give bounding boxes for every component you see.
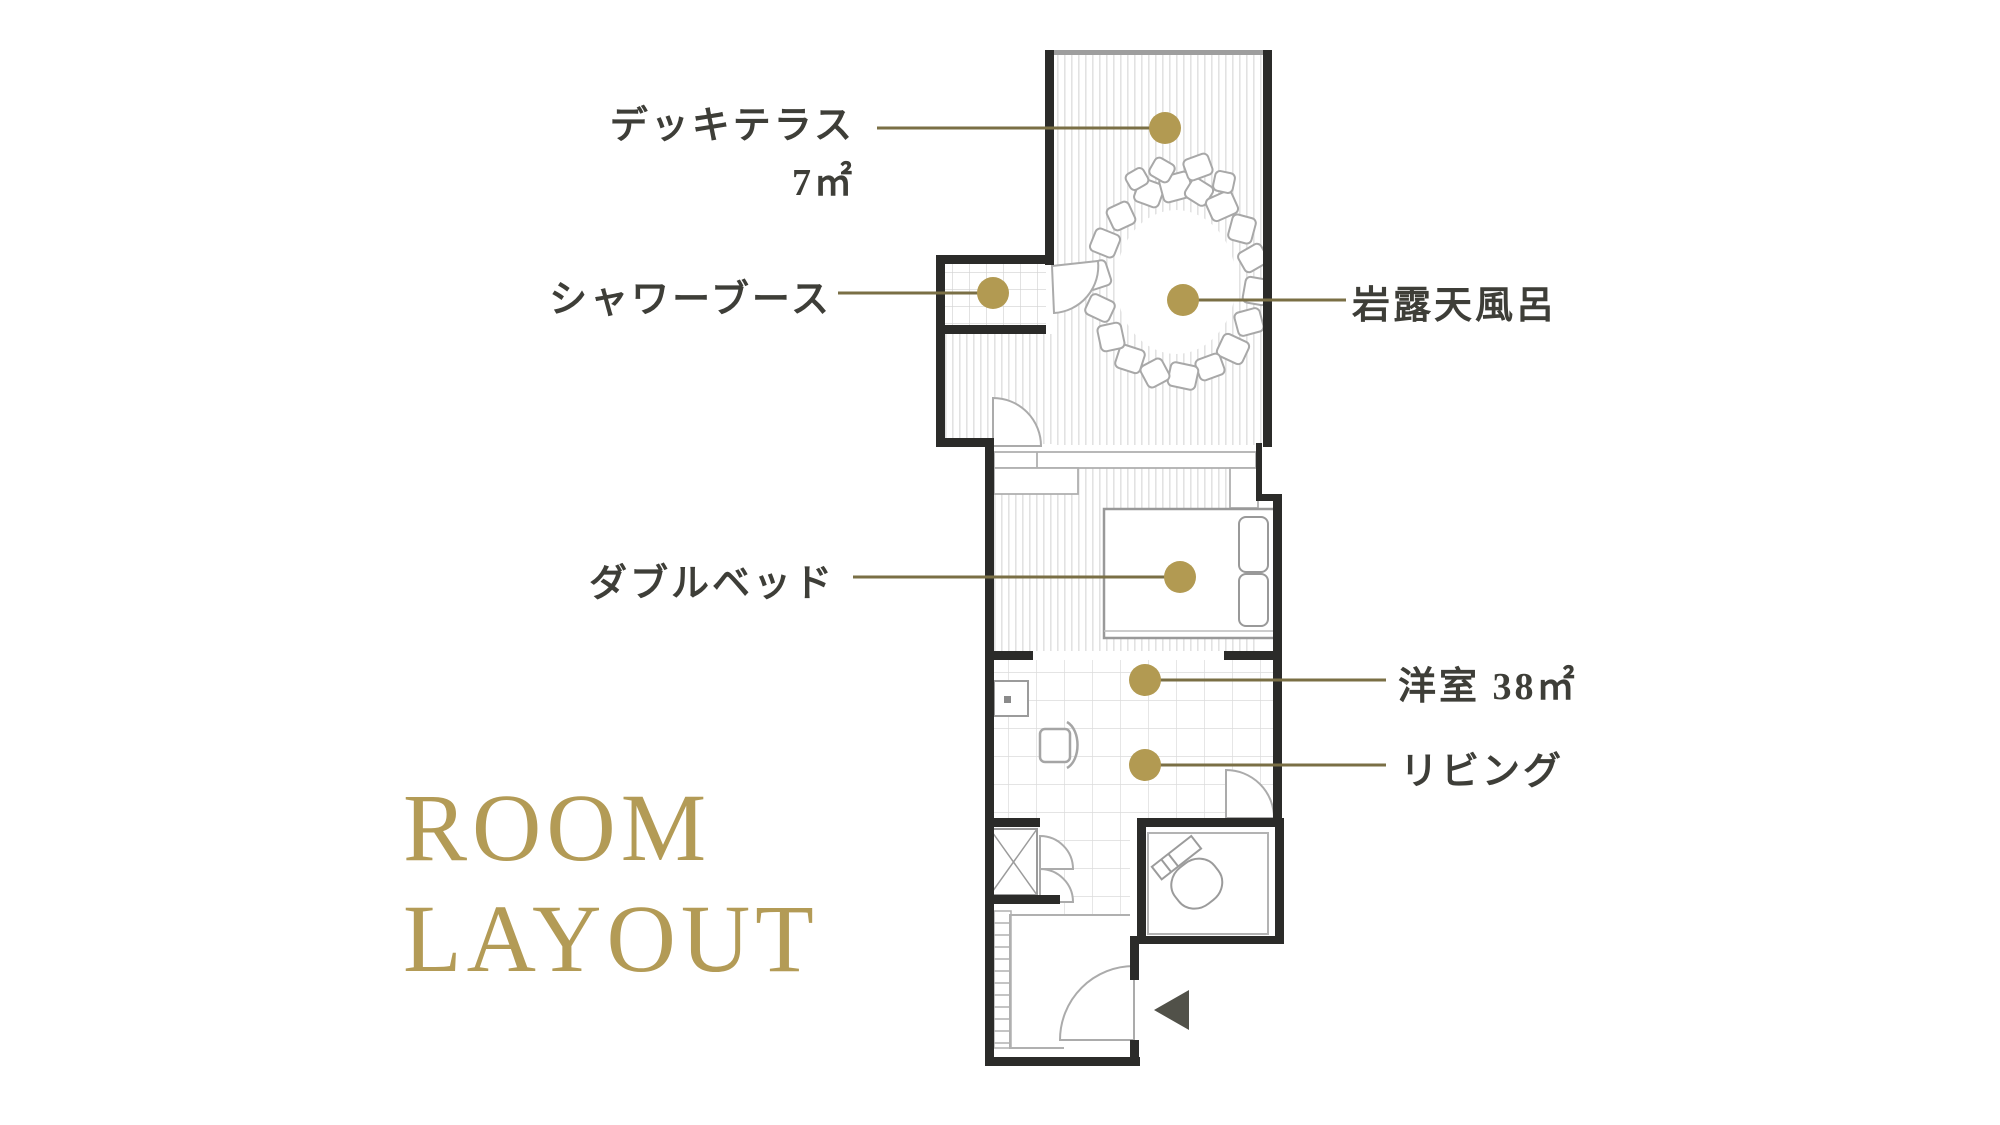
- dot-western-room: [1129, 664, 1161, 696]
- stairs: [994, 911, 1011, 1048]
- page-title: ROOM LAYOUT: [403, 772, 819, 995]
- label-rock-bath-text: 岩露天風呂: [1352, 278, 1557, 335]
- entry-door-arc: [1060, 966, 1134, 1040]
- page-title-line-1: ROOM: [403, 772, 819, 883]
- page-title-line-2: LAYOUT: [403, 883, 819, 994]
- dot-double-bed: [1164, 561, 1196, 593]
- label-western-room: 洋室 38㎡: [1398, 659, 1578, 716]
- storage-box: [990, 829, 1037, 895]
- stair-treads: [994, 923, 1011, 1043]
- dot-deck-terrace: [1149, 112, 1181, 144]
- kitchenette-counter: [994, 681, 1028, 716]
- label-western-room-text: 洋室 38㎡: [1398, 659, 1578, 716]
- pillow: [1239, 574, 1268, 626]
- room-layout-page: デッキテラス 7㎡ シャワーブース 岩露天風呂 ダブルベッド 洋室 38㎡ リビ…: [0, 0, 2000, 1125]
- label-living-text: リビング: [1400, 744, 1564, 801]
- label-deck-terrace: デッキテラス 7㎡: [610, 98, 855, 212]
- label-double-bed: ダブルベッド: [589, 556, 835, 613]
- floor-plan: [0, 0, 2000, 1125]
- label-deck-terrace-area: 7㎡: [610, 155, 855, 212]
- entry-arrow-icon: [1154, 990, 1189, 1030]
- label-deck-terrace-text: デッキテラス: [610, 98, 855, 155]
- dot-living: [1129, 749, 1161, 781]
- dot-shower-booth: [977, 277, 1009, 309]
- label-shower-booth-text: シャワーブース: [549, 272, 832, 329]
- label-shower-booth: シャワーブース: [549, 272, 832, 329]
- dot-rock-bath: [1167, 284, 1199, 316]
- label-double-bed-text: ダブルベッド: [589, 556, 835, 613]
- label-living: リビング: [1400, 744, 1564, 801]
- deck-rail: [1045, 50, 1272, 55]
- toilet-room: [1148, 833, 1268, 934]
- pillow: [1239, 517, 1268, 572]
- label-rock-bath: 岩露天風呂: [1352, 278, 1557, 335]
